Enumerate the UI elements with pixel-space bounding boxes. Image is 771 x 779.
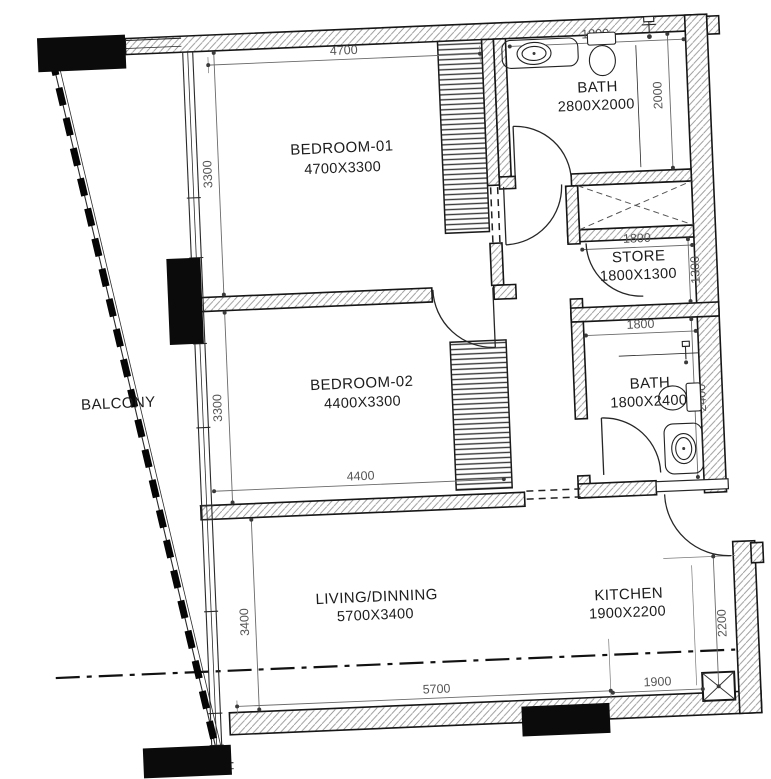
room-label-balcony: BALCONY [81, 394, 156, 414]
dim-bath2-width: 1800 [626, 317, 654, 332]
room-label-store: STORE [612, 247, 666, 266]
room-size-store: 1800X1300 [600, 266, 677, 285]
wardrobe-bedroom2 [450, 340, 512, 490]
bath1-toilet-tank [587, 32, 615, 45]
column-left-middle [166, 258, 204, 345]
bedroom1-door-arc [504, 184, 564, 244]
dim-bedroom1-width: 4700 [330, 43, 358, 58]
plan-rotated-group: 4700 3300 1800 2000 1800 1300 1800 [29, 9, 771, 779]
room-label-bath2: BATH [629, 374, 670, 393]
room-size-bedroom1: 4700X3300 [304, 159, 381, 178]
dim-store-height: 1300 [688, 256, 703, 284]
column-bottom-left [143, 745, 232, 779]
room-size-bedroom2: 4400X3300 [324, 393, 401, 412]
dim-bedroom2-width: 4400 [346, 469, 374, 484]
dim-living-height: 3400 [237, 608, 252, 636]
entrance-door-arc [665, 492, 732, 559]
room-size-kitchen: 1900X2200 [589, 603, 666, 622]
bath2-toilet-tank [686, 383, 701, 412]
section-dashdot-line [56, 650, 735, 678]
dim-bath1-height: 2000 [650, 81, 665, 109]
room-labels-group: BEDROOM-01 4700X3300 BATH 2800X2000 STOR… [68, 76, 696, 644]
dim-bedroom2-height: 3300 [210, 394, 225, 422]
room-size-living: 5700X3400 [337, 606, 414, 625]
bath1-door-arc [513, 124, 571, 182]
dim-store-width: 1800 [623, 231, 651, 246]
room-size-bath2: 1800X2400 [610, 392, 687, 411]
bath2-door-arc [601, 416, 660, 475]
room-label-bedroom1: BEDROOM-01 [290, 137, 394, 158]
floor-plan-svg: 4700 3300 1800 2000 1800 1300 1800 [0, 0, 771, 779]
dim-kitchen-height: 2200 [714, 609, 729, 637]
dim-living-width: 5700 [422, 682, 450, 697]
dim-kitchen-width: 1900 [643, 674, 671, 689]
wardrobe-bedroom1 [437, 40, 489, 234]
column-top-left [37, 35, 126, 73]
room-label-bedroom2: BEDROOM-02 [310, 373, 414, 394]
room-label-living: LIVING/DINNING [315, 586, 438, 608]
floor-plan-page: 4700 3300 1800 2000 1800 1300 1800 [0, 0, 771, 779]
room-label-bath1: BATH [577, 78, 618, 97]
dim-bedroom1-height: 3300 [200, 160, 215, 188]
room-label-kitchen: KITCHEN [594, 585, 663, 605]
column-bottom-middle [521, 703, 610, 737]
bath1-toilet-bowl [589, 45, 616, 76]
room-size-bath1: 2800X2000 [558, 96, 635, 115]
